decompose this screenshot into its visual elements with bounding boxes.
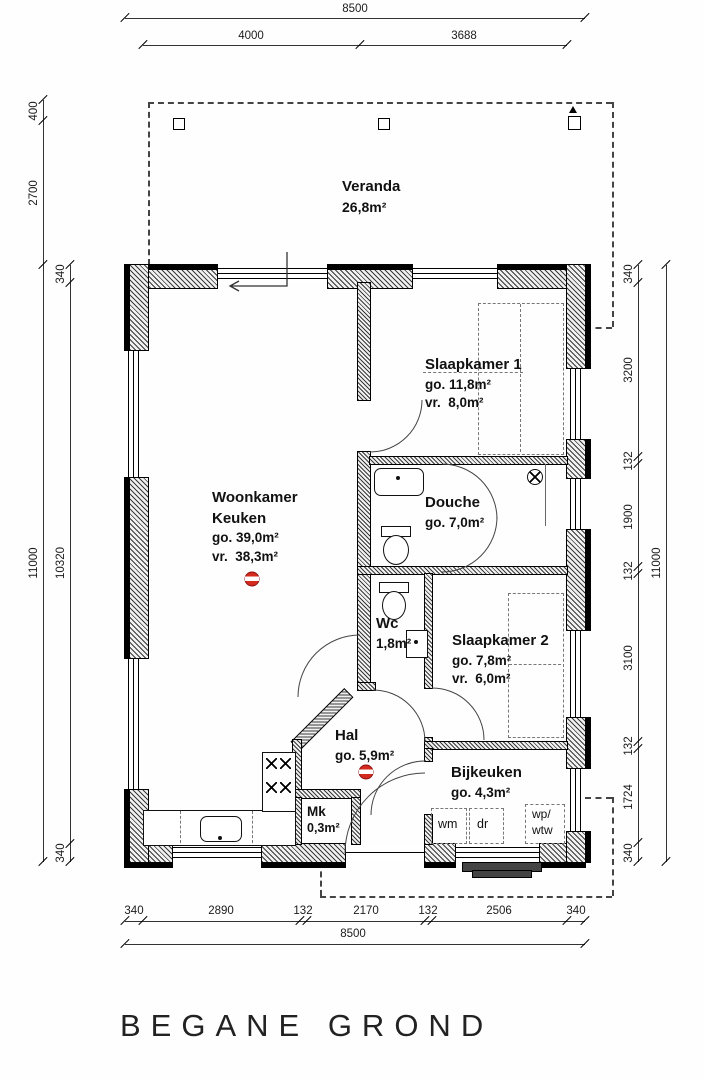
- toilet-icon: [383, 535, 409, 565]
- appliance-label-wm: wm: [438, 817, 457, 831]
- fountain-tap: [414, 640, 418, 644]
- dimension-label: 1900: [623, 504, 635, 530]
- appliance-label-line: wp/: [532, 807, 553, 823]
- door-arc: [298, 635, 360, 697]
- washbasin-tap: [396, 476, 400, 480]
- room-area-vr: vr. 8,0m²: [425, 394, 522, 413]
- room-name: Mk: [307, 804, 340, 821]
- room-area: 26,8m²: [342, 198, 400, 217]
- room-area-go: go. 4,3m²: [451, 784, 522, 803]
- dimension-label: 8500: [342, 3, 368, 15]
- smoke-detector-icon: [244, 571, 260, 587]
- dimension-label: 2170: [353, 905, 379, 917]
- dimension-label: 340: [566, 905, 585, 917]
- room-label-woonkamer: Woonkamer Keuken go. 39,0m² vr. 38,3m²: [212, 488, 298, 567]
- appliance-label-wp: wp/ wtw: [532, 807, 553, 838]
- room-area-go: go. 39,0m²: [212, 529, 298, 548]
- door-arcs-layer: [0, 0, 703, 1080]
- dimension-label: 2506: [486, 905, 512, 917]
- sink-tap: [218, 836, 222, 840]
- counter-divider: [180, 811, 181, 843]
- room-label-slaapkamer2: Slaapkamer 2 go. 7,8m² vr. 6,0m²: [452, 631, 549, 689]
- hob-burner-icon: [280, 758, 291, 769]
- hob-burner-icon: [266, 782, 277, 793]
- room-area-go: go. 7,8m²: [452, 652, 549, 671]
- room-area-go: go. 5,9m²: [335, 747, 394, 766]
- room-area-vr: vr. 38,3m²: [212, 548, 298, 567]
- door-arc: [432, 688, 484, 740]
- dimension-label: 340: [55, 264, 67, 283]
- dimension-label: 132: [623, 736, 635, 755]
- room-area: 0,3m²: [307, 821, 340, 837]
- dimension-label: 2700: [28, 180, 40, 206]
- room-name: Hal: [335, 726, 394, 747]
- room-name: Slaapkamer 1: [425, 355, 522, 376]
- dimension-line: [125, 18, 585, 19]
- room-name: Wc: [376, 614, 411, 635]
- hob-burner-icon: [280, 782, 291, 793]
- room-label-hal: Hal go. 5,9m²: [335, 726, 394, 765]
- appliance-label-dr: dr: [477, 817, 488, 831]
- room-name: Veranda: [342, 177, 400, 198]
- dimension-label: 400: [28, 101, 40, 120]
- door-arc: [345, 773, 425, 853]
- room-name: Douche: [425, 493, 484, 514]
- room-label-douche: Douche go. 7,0m²: [425, 493, 484, 532]
- room-name: Bijkeuken: [451, 763, 522, 784]
- dimension-line: [70, 265, 71, 862]
- hob-burner-icon: [266, 758, 277, 769]
- dimension-label: 8500: [340, 928, 366, 940]
- dimension-line: [666, 265, 667, 862]
- room-area: 1,8m²: [376, 635, 411, 654]
- room-area-go: go. 7,0m²: [425, 514, 484, 533]
- room-label-bijkeuken: Bijkeuken go. 4,3m²: [451, 763, 522, 802]
- dimension-line: [43, 100, 44, 862]
- room-name: Woonkamer: [212, 488, 298, 509]
- room-name: Keuken: [212, 509, 298, 530]
- room-area-go: go. 11,8m²: [425, 376, 522, 395]
- room-name: Slaapkamer 2: [452, 631, 549, 652]
- dimension-line: [125, 944, 585, 945]
- dimension-label: 1724: [623, 784, 635, 810]
- dimension-label: 132: [623, 561, 635, 580]
- shower-screen: [545, 464, 546, 526]
- room-label-wc: Wc 1,8m²: [376, 614, 411, 653]
- room-label-mk: Mk 0,3m²: [307, 804, 340, 837]
- dimension-label: 340: [623, 843, 635, 862]
- dimension-label: 132: [623, 451, 635, 470]
- floor-plan: Veranda 26,8m² Slaapkamer 1 go. 11,8m² v…: [0, 0, 703, 1080]
- sliding-direction-arrow-icon: [230, 252, 287, 291]
- dimension-label: 2890: [208, 905, 234, 917]
- dimension-label: 132: [418, 905, 437, 917]
- dimension-label: 3688: [451, 30, 477, 42]
- dimension-label: 132: [293, 905, 312, 917]
- room-label-slaapkamer1: Slaapkamer 1 go. 11,8m² vr. 8,0m²: [425, 355, 522, 413]
- counter-divider: [252, 811, 253, 843]
- dimension-label: 340: [55, 843, 67, 862]
- door-arc: [370, 400, 422, 452]
- dimension-label: 10320: [55, 547, 67, 579]
- room-label-veranda: Veranda 26,8m²: [342, 177, 400, 217]
- dimension-label: 3200: [623, 357, 635, 383]
- dimension-label: 11000: [28, 547, 40, 578]
- dimension-label: 340: [124, 905, 143, 917]
- dimension-label: 3100: [623, 645, 635, 671]
- drawing-title: BEGANE GROND: [120, 1008, 493, 1044]
- appliance-label-line: wtw: [532, 823, 553, 839]
- dimension-label: 340: [623, 264, 635, 283]
- dimension-label: 11000: [651, 547, 663, 578]
- room-area-vr: vr. 6,0m²: [452, 670, 549, 689]
- smoke-detector-icon: [358, 764, 374, 780]
- dimension-line: [143, 45, 567, 46]
- washbasin: [374, 468, 424, 496]
- dimension-line: [125, 921, 585, 922]
- shower-head-icon: [527, 469, 543, 485]
- dimension-label: 4000: [238, 30, 264, 42]
